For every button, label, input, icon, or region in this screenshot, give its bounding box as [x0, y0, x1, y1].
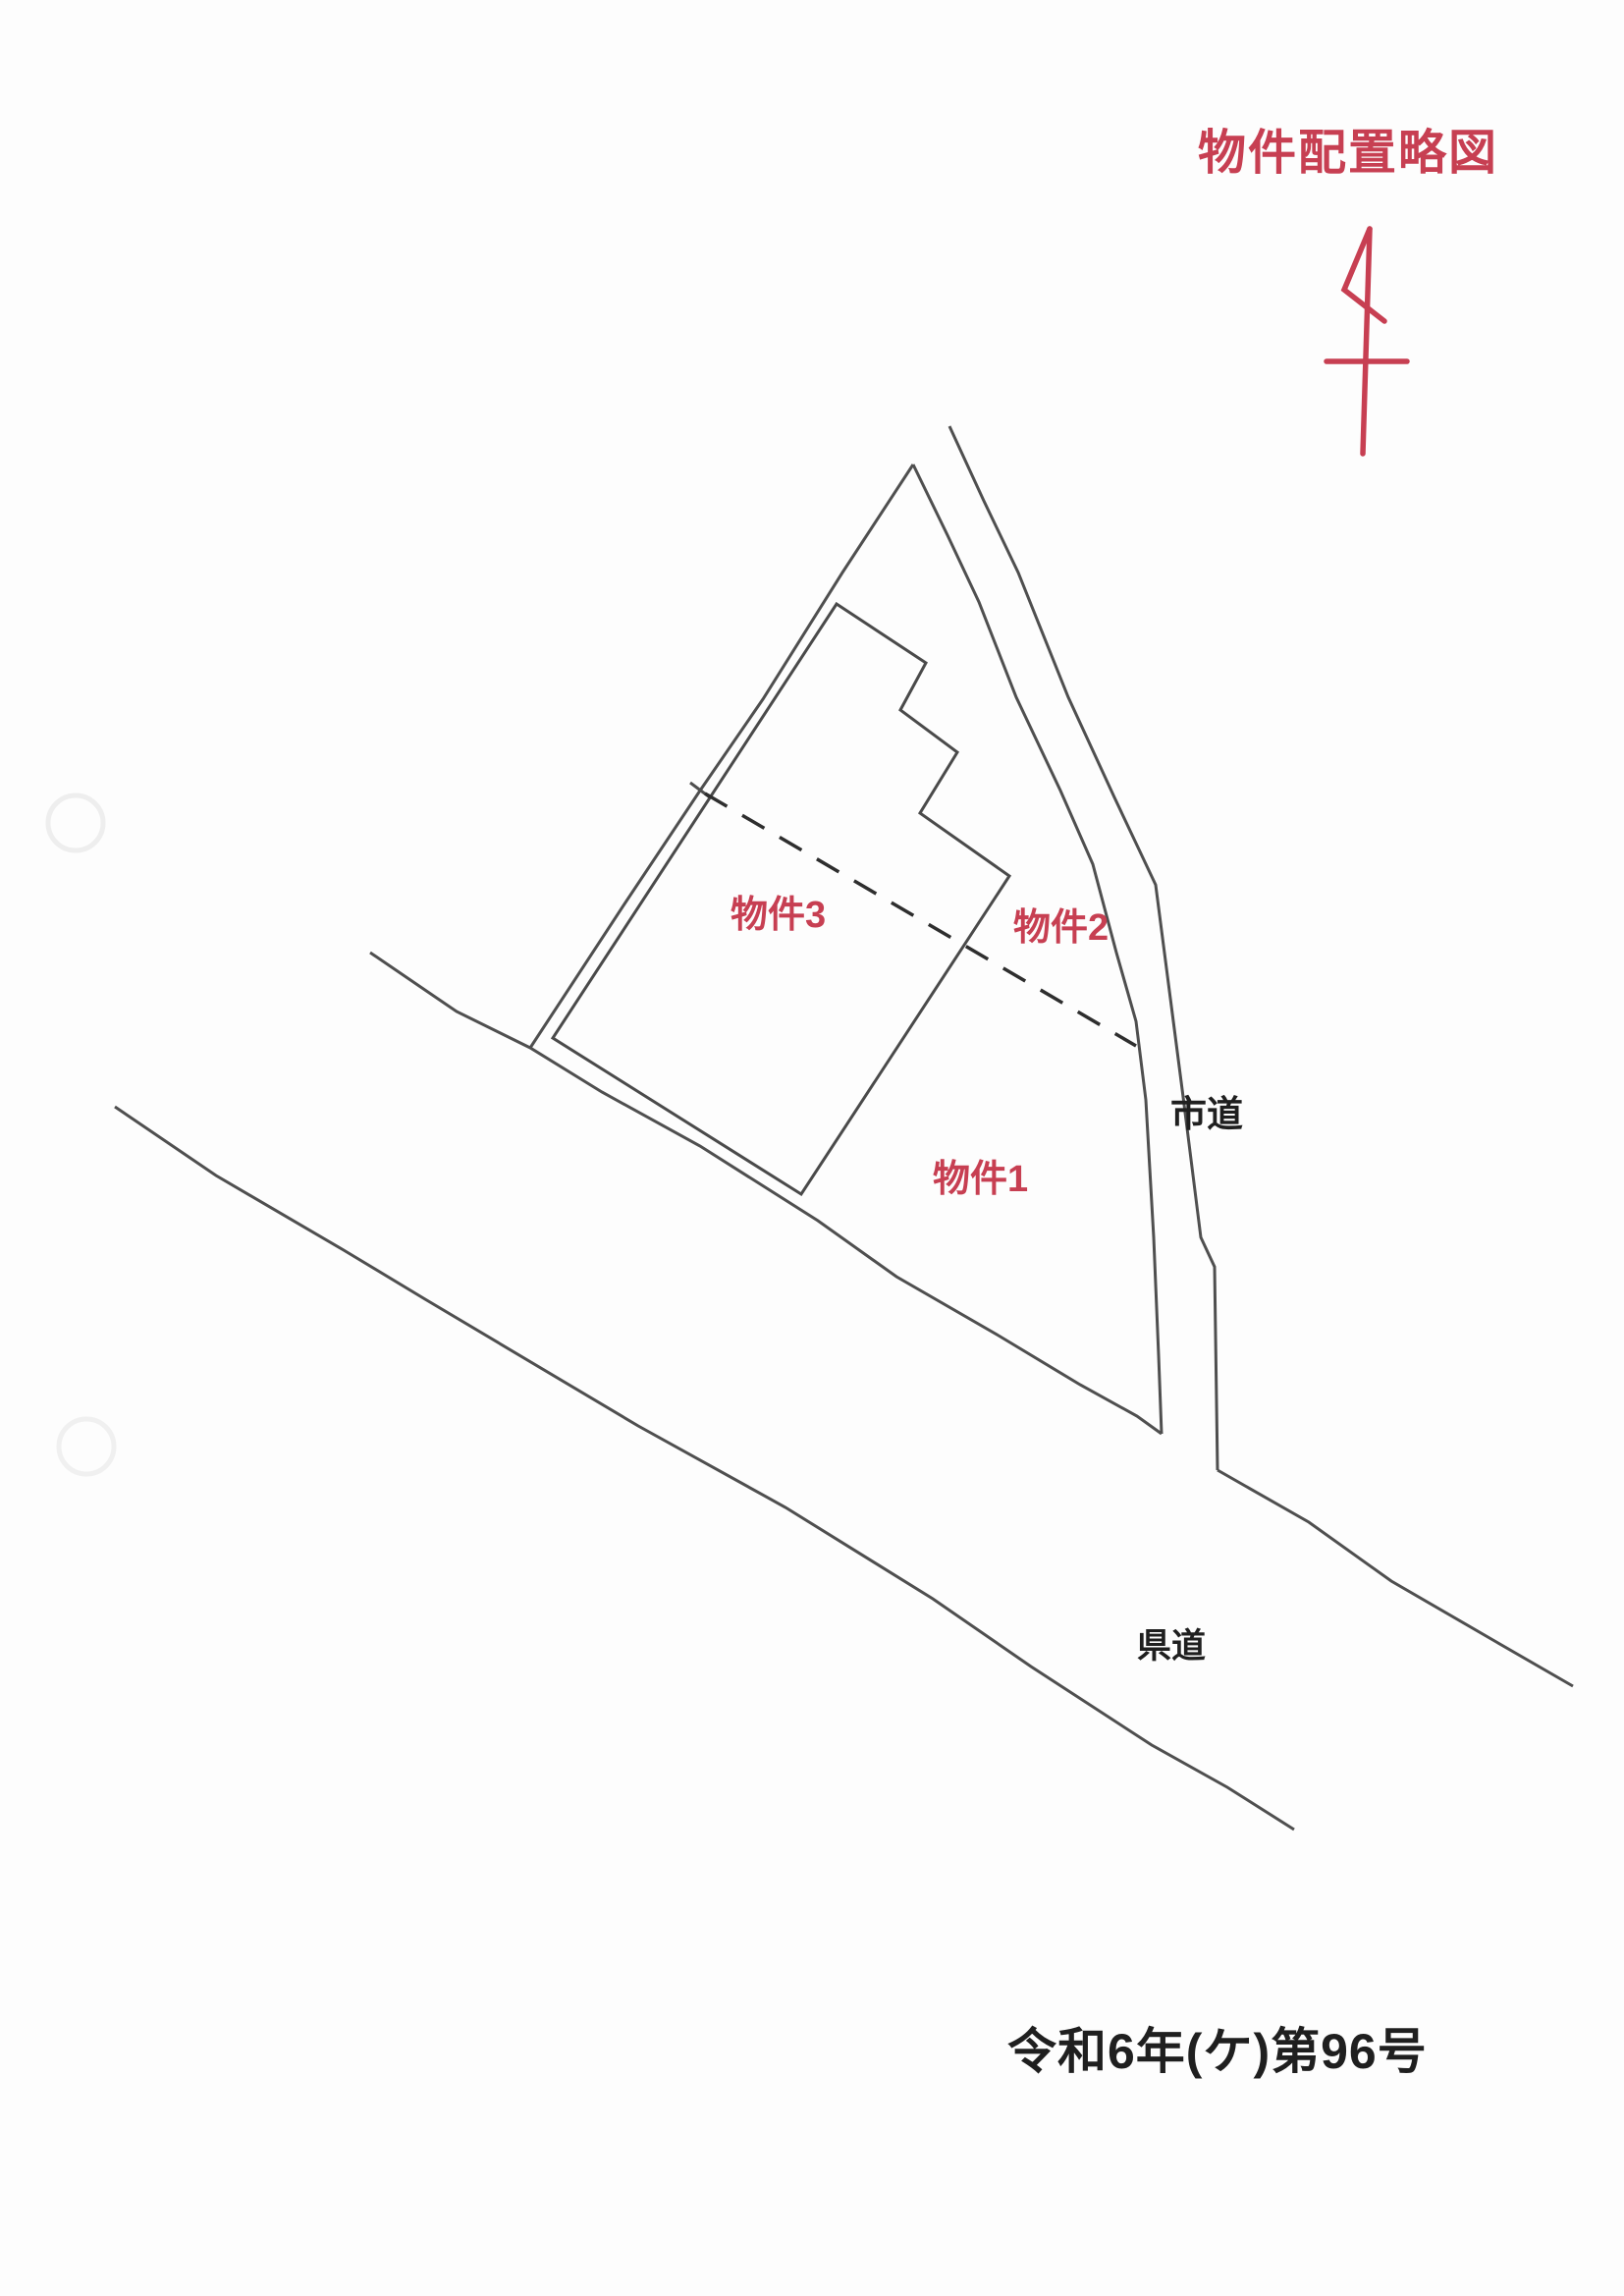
scan-artifact-circle [59, 1419, 114, 1474]
label-city-road: 市道 [1170, 1096, 1243, 1132]
label-prefectural-road: 県道 [1137, 1629, 1206, 1664]
city-road-left-edge-line [913, 465, 1162, 1434]
north-arrow-icon [1326, 229, 1407, 454]
scan-artifact-circle [48, 795, 103, 850]
case-number: 令和6年(ケ)第96号 [1007, 2027, 1428, 2076]
label-bukken1: 物件1 [933, 1161, 1028, 1198]
site-plan-page: 物件配置略図 物件3 物件2 物件1 市道 県道 令和6年(ケ)第96号 [0, 0, 1624, 2296]
prefectural-road-upper-edge-east-line [1218, 1470, 1573, 1686]
prefectural-road-lower-edge-line [115, 1107, 1294, 1830]
label-bukken3: 物件3 [731, 897, 826, 934]
page-title: 物件配置略図 [1198, 130, 1498, 178]
site-plan-drawing [0, 0, 1624, 2296]
label-bukken2: 物件2 [1013, 909, 1109, 947]
prefectural-road-upper-edge-west-line [370, 953, 1162, 1434]
parcel-west-boundary-line [530, 465, 913, 1048]
